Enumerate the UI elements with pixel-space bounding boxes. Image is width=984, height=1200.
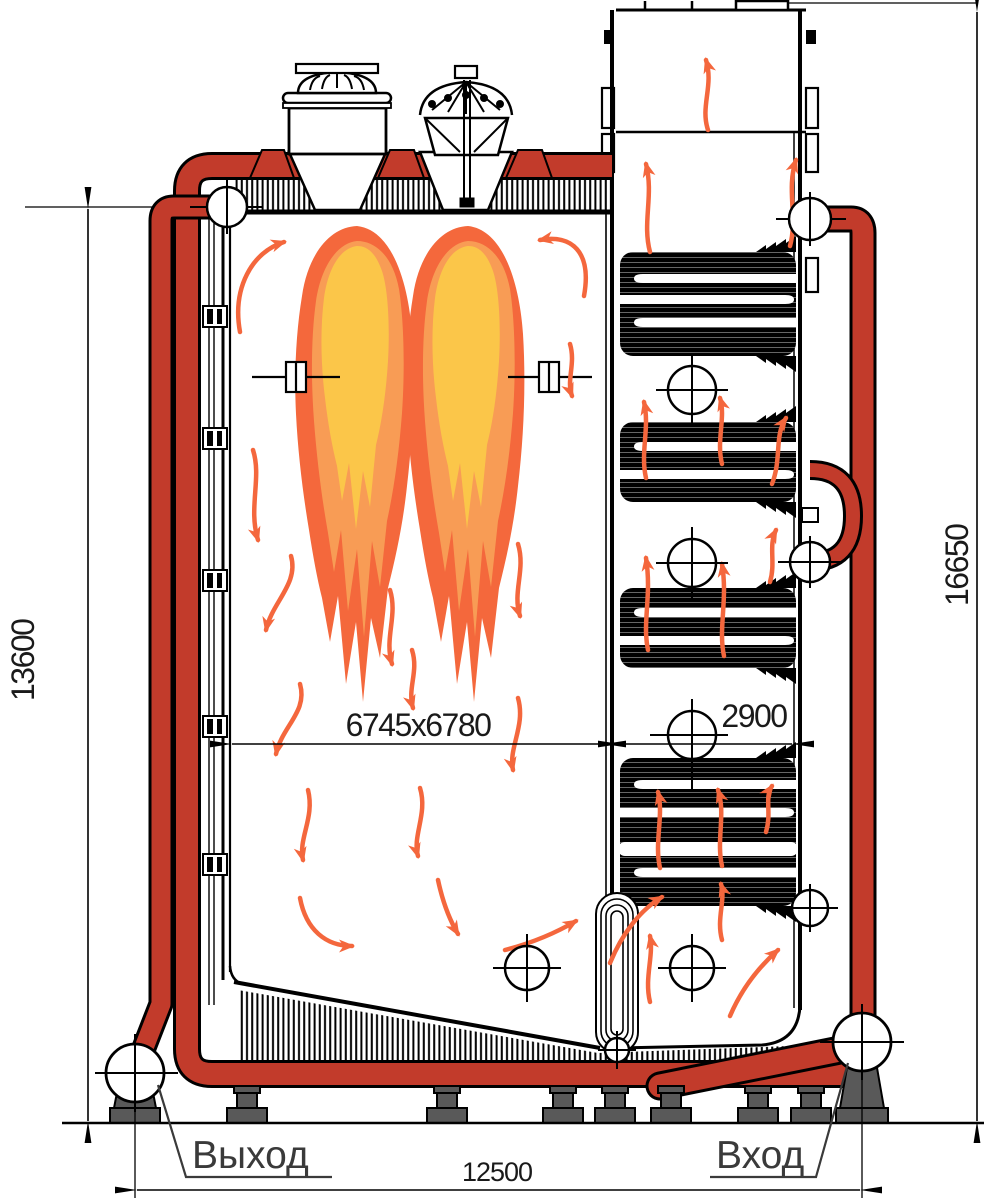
- grate-fin-band: [238, 990, 790, 1064]
- support-foot: [651, 1086, 691, 1123]
- dimension-convective-width: 2900: [620, 698, 792, 744]
- chimney-curb: [736, 1, 788, 10]
- pipe-clip: [203, 306, 227, 327]
- support-foot: [595, 1086, 635, 1123]
- support-foot: [227, 1086, 267, 1123]
- flame: [295, 226, 413, 702]
- roof-fin-band: [234, 178, 614, 211]
- support-foot: [791, 1086, 831, 1123]
- dim-text-12500: 12500: [462, 1157, 532, 1187]
- flame: [406, 226, 524, 702]
- centerline-marker: [656, 354, 728, 426]
- pipe-clip: [203, 570, 227, 591]
- pipe-clip: [203, 854, 227, 875]
- inlet-riser-pipe: [827, 219, 863, 1042]
- support-foot: [738, 1086, 778, 1123]
- coil-bank: [618, 742, 798, 922]
- burner-assembly-right: [420, 66, 512, 210]
- nozzle-marker: [776, 192, 846, 246]
- dimension-height-right: 16650: [939, 12, 977, 1121]
- centerline-marker: [493, 934, 561, 1002]
- flames: [295, 226, 524, 702]
- dimension-height-left: 13600: [5, 207, 152, 1121]
- outlet-nozzle-marker: [95, 1034, 178, 1112]
- inlet-label: Вход: [716, 1134, 804, 1177]
- convective-shaft: [602, 1, 977, 1048]
- centerline-marker: [658, 934, 726, 1002]
- outlet-label: Выход: [192, 1134, 309, 1177]
- boiler-technical-diagram: 13600 16650 6745x6780 2900 12500 Выход В…: [0, 0, 984, 1200]
- coil-bank: [620, 236, 796, 372]
- pipe-clip: [203, 428, 227, 449]
- support-foot: [543, 1086, 583, 1123]
- pipe-clip: [203, 716, 227, 737]
- dim-text-2900: 2900: [721, 698, 787, 734]
- dim-text-16650: 16650: [939, 524, 975, 606]
- dim-text-13600: 13600: [5, 619, 41, 701]
- support-foot: [427, 1086, 467, 1123]
- dim-text-6745x6780: 6745x6780: [346, 707, 492, 743]
